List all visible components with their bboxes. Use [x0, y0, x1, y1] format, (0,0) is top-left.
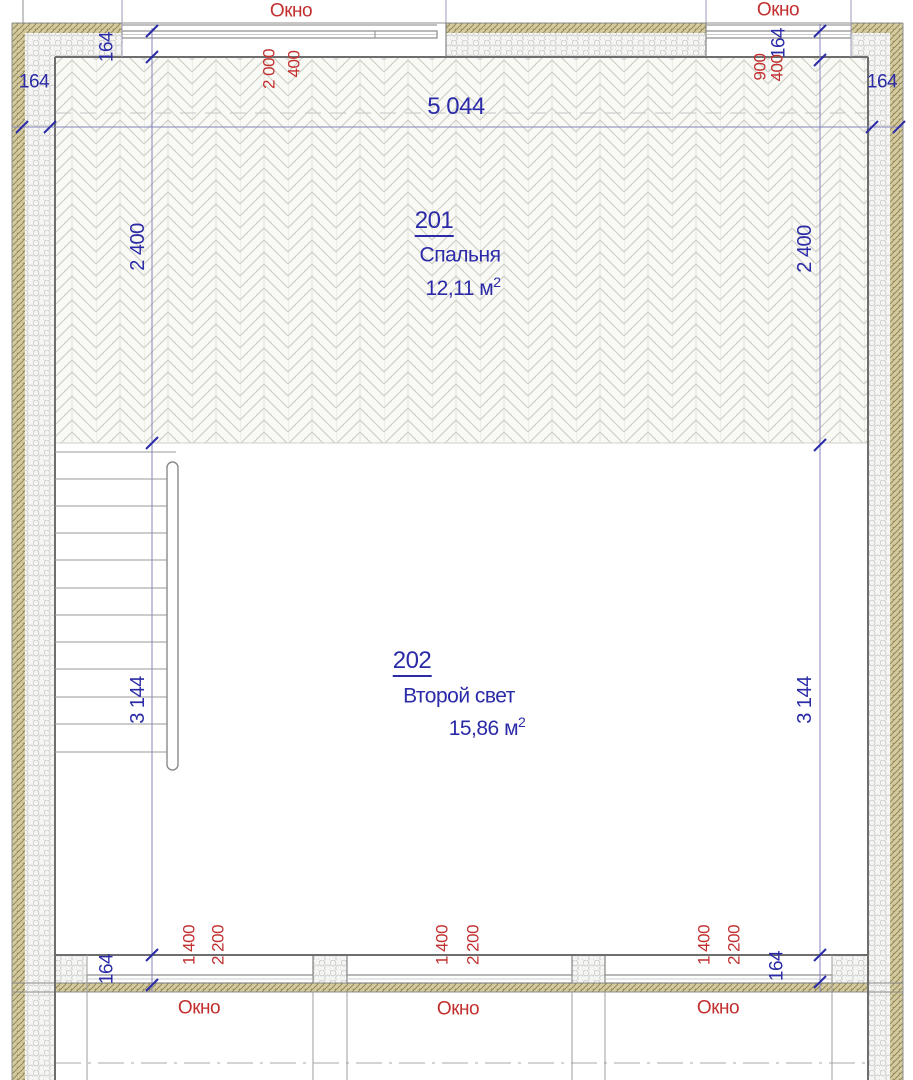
window-label-top-right: Окно: [757, 1, 799, 20]
dim-left-wall-top: 164: [98, 32, 117, 62]
dim-left-hall-depth: 3 144: [128, 676, 148, 724]
room-202-area-exponent: 2: [518, 714, 525, 730]
stairs: [55, 452, 176, 752]
plan-linework: [0, 0, 913, 1080]
dim-bottom-window2-height: 2 200: [465, 925, 482, 965]
dim-bottom-window2-width: 1 400: [434, 925, 451, 965]
room-201-area: 12,11 м2: [425, 275, 500, 299]
dim-bottom-window1-height: 2 200: [210, 925, 227, 965]
room-202-area: 15,86 м2: [449, 715, 526, 739]
dim-bottom-window1-width: 1 400: [181, 925, 198, 965]
dim-bottom-window3-width: 1 400: [696, 925, 713, 965]
room-202-number: 202: [393, 649, 432, 677]
dim-top-window-right-offset: 400: [769, 55, 786, 82]
room-201-area-exponent: 2: [493, 274, 500, 290]
dim-top-window-left-offset: 400: [286, 51, 303, 78]
dim-right-hall-depth: 3 144: [795, 676, 815, 724]
dim-top-window-right-width: 900: [752, 54, 769, 81]
window-bottom-right: [605, 975, 832, 983]
stair-railing: [167, 462, 178, 770]
window-label-bottom-left: Окно: [178, 999, 220, 1018]
room-201-number: 201: [415, 209, 454, 237]
dim-left-wall-bottom: 164: [98, 954, 117, 984]
floor-plan-drawing: Окно Окно Окно Окно Окно 5 044 164 164 2…: [0, 0, 913, 1080]
dim-right-wall-bottom: 164: [768, 951, 787, 981]
dim-overall-width: 5 044: [427, 95, 485, 119]
window-label-top-left: Окно: [270, 2, 312, 21]
window-bottom-middle: [347, 975, 572, 983]
dim-right-wall-side: 164: [867, 73, 897, 92]
dim-left-room-depth: 2 400: [128, 223, 148, 271]
window-label-bottom-middle: Окно: [437, 1000, 479, 1019]
dim-left-wall-side: 164: [19, 73, 49, 92]
dim-bottom-window3-height: 2 200: [726, 925, 743, 965]
room-202-name: Второй свет: [403, 686, 515, 707]
room-202-area-value: 15,86 м: [449, 717, 518, 740]
room-201-area-value: 12,11 м: [425, 277, 493, 300]
window-label-bottom-right: Окно: [697, 999, 739, 1018]
dim-top-window-left-width: 2 000: [261, 49, 278, 89]
room-201-name: Спальня: [420, 245, 501, 266]
window-top-left: [122, 25, 437, 38]
dim-right-room-depth: 2 400: [795, 225, 815, 273]
window-bottom-left: [87, 975, 313, 983]
